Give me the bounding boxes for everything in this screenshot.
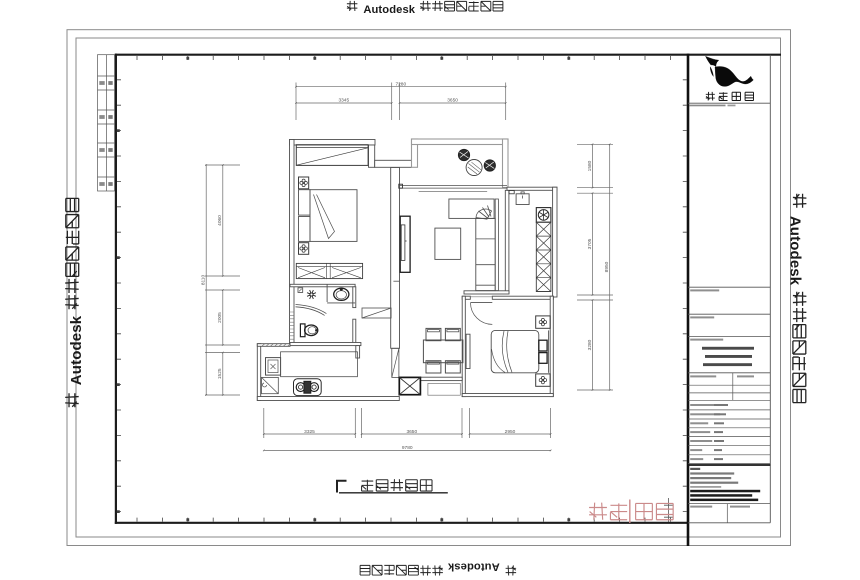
svg-text:4060: 4060 bbox=[217, 215, 223, 226]
svg-text:3325: 3325 bbox=[304, 429, 315, 435]
svg-text:7280: 7280 bbox=[395, 81, 406, 87]
svg-text:1525: 1525 bbox=[217, 368, 223, 379]
svg-text:3650: 3650 bbox=[447, 98, 458, 104]
svg-text:Autodesk: Autodesk bbox=[447, 561, 499, 573]
svg-text:8110: 8110 bbox=[201, 275, 207, 286]
svg-text:8950: 8950 bbox=[604, 261, 610, 272]
svg-text:2950: 2950 bbox=[505, 429, 516, 435]
svg-text:Autodesk: Autodesk bbox=[787, 216, 804, 286]
svg-text:3345: 3345 bbox=[338, 98, 349, 104]
svg-text:2005: 2005 bbox=[217, 312, 223, 323]
svg-text:3705: 3705 bbox=[587, 238, 593, 249]
svg-text:1580: 1580 bbox=[587, 160, 593, 171]
svg-text:Autodesk: Autodesk bbox=[68, 315, 85, 385]
svg-text:Autodesk: Autodesk bbox=[363, 4, 415, 16]
svg-text:9780: 9780 bbox=[402, 445, 413, 451]
svg-text:3280: 3280 bbox=[587, 339, 593, 350]
svg-text:3650: 3650 bbox=[406, 429, 417, 435]
